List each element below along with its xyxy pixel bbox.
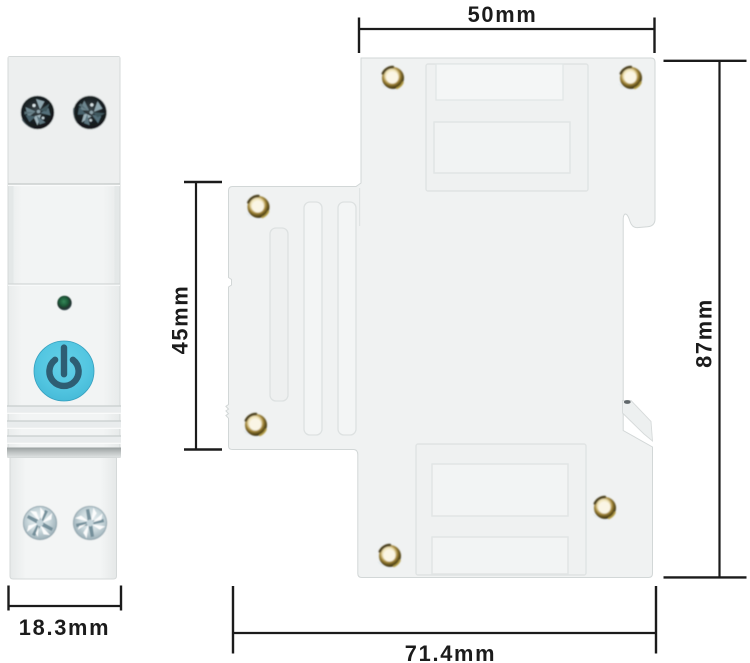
svg-text:45mm: 45mm <box>168 285 193 355</box>
svg-text:87mm: 87mm <box>692 298 717 368</box>
svg-text:71.4mm: 71.4mm <box>405 641 496 663</box>
svg-text:50mm: 50mm <box>468 2 538 27</box>
svg-text:18.3mm: 18.3mm <box>19 615 110 640</box>
